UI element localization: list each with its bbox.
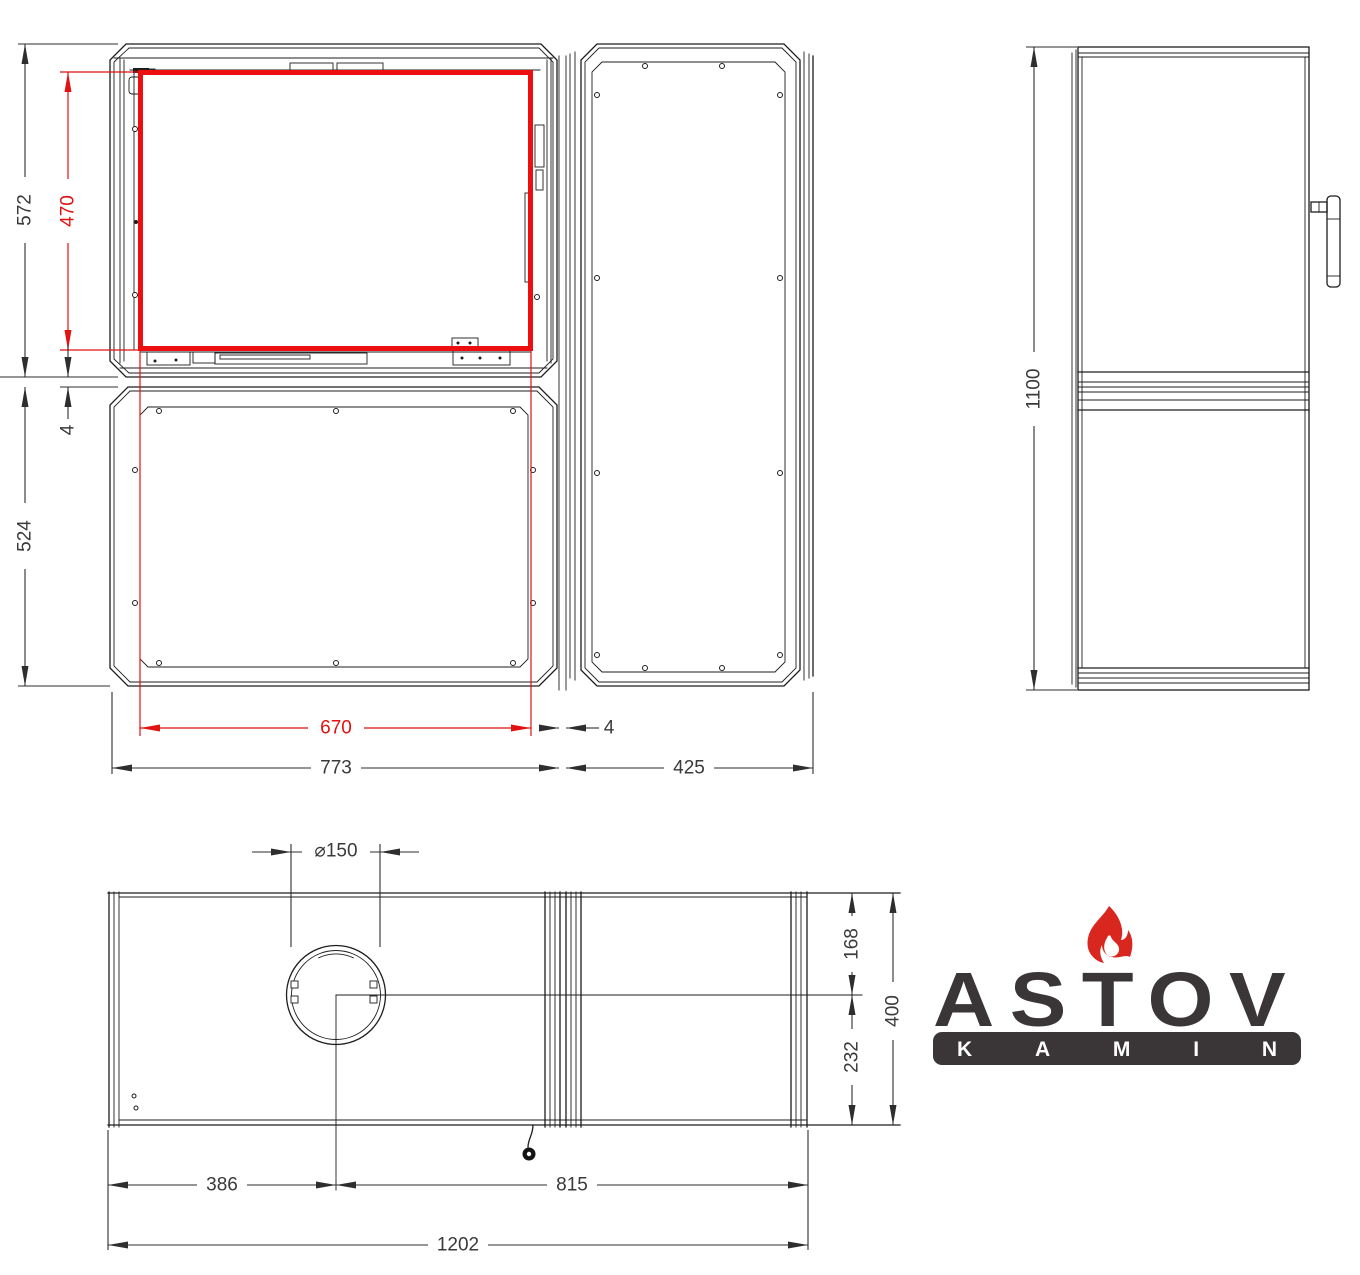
svg-text:1202: 1202 — [437, 1235, 479, 1256]
svg-text:⌀150: ⌀150 — [314, 841, 357, 862]
drawing-canvas: 572 470 4 524 670 — [0, 0, 1360, 1275]
dim-left-to-flue-center: 386 — [108, 1174, 336, 1196]
top-vent-slot-left — [290, 63, 333, 70]
door-latch — [525, 125, 544, 300]
dim-right-module-width: 425 — [566, 757, 813, 779]
dim-side-total-height: 1100 — [1023, 47, 1045, 690]
damper-cable-ring — [523, 1125, 536, 1161]
svg-text:524: 524 — [15, 520, 36, 552]
flame-icon — [1088, 906, 1133, 963]
svg-text:470: 470 — [58, 195, 79, 227]
glass-opening-highlight — [141, 73, 531, 349]
svg-text:572: 572 — [15, 194, 36, 226]
dim-glass-height: 470 — [57, 72, 138, 350]
dim-glass-width: 670 — [140, 717, 531, 739]
dim-top-module-height: 572 — [14, 44, 36, 377]
dim-front-total-width: 773 — [112, 757, 559, 779]
svg-text:1100: 1100 — [1024, 369, 1045, 410]
svg-text:4: 4 — [604, 718, 615, 739]
door-handle — [1311, 196, 1340, 287]
top-vent-slot-right — [337, 63, 383, 70]
svg-text:4: 4 — [58, 424, 79, 435]
svg-text:425: 425 — [673, 758, 705, 779]
front-right-module — [570, 44, 813, 686]
svg-text:815: 815 — [556, 1175, 588, 1196]
top-view — [108, 892, 900, 1190]
dim-flue-to-rear: 232 — [841, 995, 863, 1125]
dim-panel-gap-vertical: 4 — [58, 345, 79, 435]
side-view — [1072, 47, 1340, 690]
brand-logo: ASTOV KAMIN — [933, 906, 1301, 1065]
dimensions: 572 470 4 524 670 — [0, 44, 1077, 1256]
front-view — [110, 44, 813, 690]
svg-text:168: 168 — [842, 928, 863, 960]
svg-text:386: 386 — [206, 1175, 238, 1196]
dim-flue-to-front: 168 — [841, 893, 863, 995]
brand-name: ASTOV — [933, 957, 1301, 1043]
technical-drawing-page: 572 470 4 524 670 — [0, 0, 1360, 1275]
dim-panel-gap-horizontal: 4 — [541, 718, 615, 739]
svg-text:773: 773 — [320, 758, 352, 779]
door-bottom-trim — [120, 338, 547, 368]
dim-bottom-module-height: 524 — [14, 387, 36, 686]
dim-flue-diameter: ⌀150 — [252, 841, 419, 948]
svg-text:400: 400 — [883, 995, 904, 1027]
dim-top-total-width: 1202 — [108, 1234, 808, 1256]
dim-total-depth: 400 — [882, 893, 904, 1125]
svg-text:670: 670 — [320, 718, 352, 739]
dim-flue-center-to-right: 815 — [336, 1174, 808, 1196]
svg-text:232: 232 — [842, 1041, 863, 1073]
